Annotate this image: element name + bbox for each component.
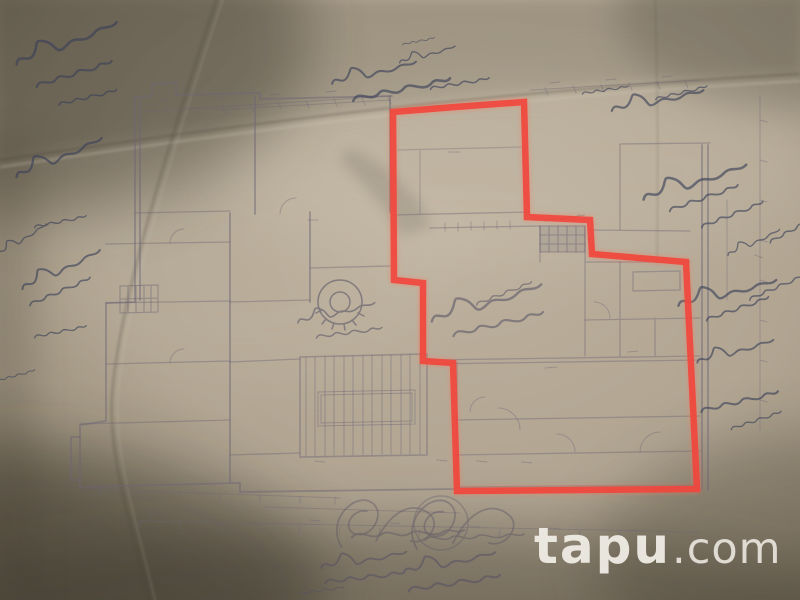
watermark-brand: tapu [534, 521, 671, 571]
watermark-suffix: .com [672, 528, 782, 571]
floorplan-photo: tapu.com [0, 0, 800, 600]
tapu-watermark: tapu.com [534, 521, 782, 571]
photo-canvas [0, 0, 800, 600]
